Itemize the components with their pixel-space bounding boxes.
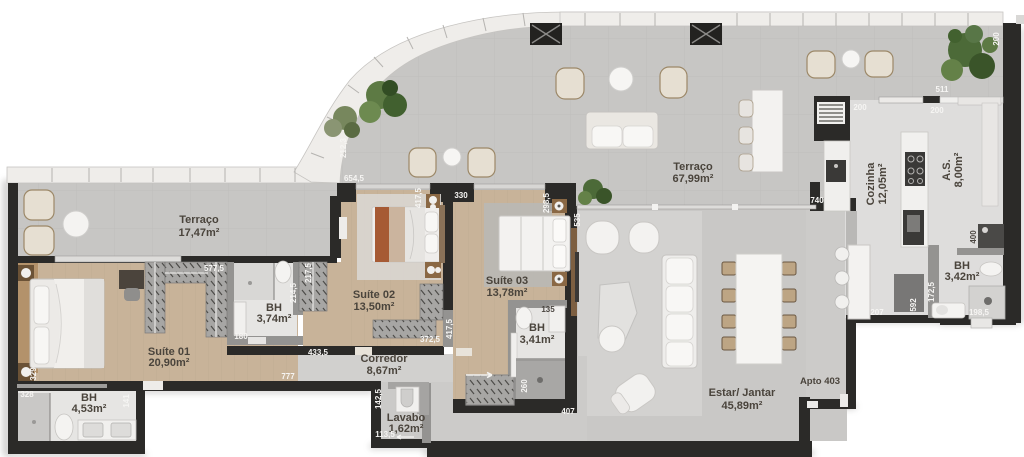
svg-text:535: 535: [573, 213, 582, 227]
svg-text:200: 200: [992, 32, 1001, 46]
svg-text:180: 180: [234, 332, 248, 341]
svg-text:Estar/ Jantar: Estar/ Jantar: [709, 387, 776, 399]
svg-text:113,5: 113,5: [375, 430, 395, 439]
svg-text:198,5: 198,5: [969, 308, 990, 317]
svg-text:Terraço: Terraço: [179, 214, 219, 226]
svg-text:592: 592: [909, 298, 918, 312]
svg-text:A.S.: A.S.: [941, 159, 953, 180]
svg-text:330: 330: [454, 191, 468, 200]
svg-text:433,5: 433,5: [308, 348, 329, 357]
svg-text:67,99m²: 67,99m²: [673, 173, 714, 185]
svg-text:654,5: 654,5: [344, 174, 365, 183]
svg-text:3,74m²: 3,74m²: [257, 313, 292, 325]
svg-text:400: 400: [969, 230, 978, 244]
svg-text:13,78m²: 13,78m²: [487, 287, 528, 299]
svg-text:212,3: 212,3: [339, 137, 348, 158]
svg-text:20,90m²: 20,90m²: [149, 357, 190, 369]
svg-text:Terraço: Terraço: [673, 161, 713, 173]
svg-text:8,00m²: 8,00m²: [953, 152, 965, 187]
svg-text:Suíte 03: Suíte 03: [486, 275, 528, 287]
svg-text:135: 135: [541, 305, 555, 314]
svg-text:260: 260: [520, 379, 529, 393]
svg-text:329: 329: [29, 367, 38, 381]
svg-text:577,5: 577,5: [204, 264, 225, 273]
svg-text:207: 207: [870, 308, 884, 317]
svg-text:141: 141: [122, 394, 131, 408]
svg-text:8,67m²: 8,67m²: [367, 365, 402, 377]
svg-text:200: 200: [930, 106, 944, 115]
svg-text:217,5: 217,5: [304, 262, 313, 283]
svg-text:Cozinha: Cozinha: [865, 162, 877, 206]
svg-text:417,5: 417,5: [414, 187, 423, 208]
svg-text:200: 200: [853, 103, 867, 112]
svg-text:328: 328: [20, 390, 34, 399]
svg-text:Corredor: Corredor: [360, 353, 408, 365]
svg-text:298,5: 298,5: [542, 192, 551, 213]
svg-text:BH: BH: [529, 322, 545, 334]
svg-text:417,5: 417,5: [445, 318, 454, 339]
svg-text:740: 740: [810, 196, 824, 205]
svg-text:372,5: 372,5: [420, 335, 441, 344]
svg-text:12,05m²: 12,05m²: [877, 163, 889, 204]
svg-text:214,5: 214,5: [289, 282, 298, 303]
svg-text:4,53m²: 4,53m²: [72, 403, 107, 415]
svg-text:Apto 403: Apto 403: [800, 376, 840, 387]
svg-text:142,5: 142,5: [374, 388, 383, 409]
svg-text:45,89m²: 45,89m²: [722, 400, 763, 412]
svg-text:511: 511: [936, 85, 949, 94]
svg-text:777: 777: [281, 372, 295, 381]
svg-text:17,47m²: 17,47m²: [179, 227, 220, 239]
svg-text:407: 407: [561, 407, 575, 416]
svg-text:3,41m²: 3,41m²: [520, 334, 555, 346]
svg-text:3,42m²: 3,42m²: [945, 271, 980, 283]
svg-text:Suíte 02: Suíte 02: [353, 289, 395, 301]
svg-text:13,50m²: 13,50m²: [354, 301, 395, 313]
svg-text:172,5: 172,5: [927, 281, 936, 302]
